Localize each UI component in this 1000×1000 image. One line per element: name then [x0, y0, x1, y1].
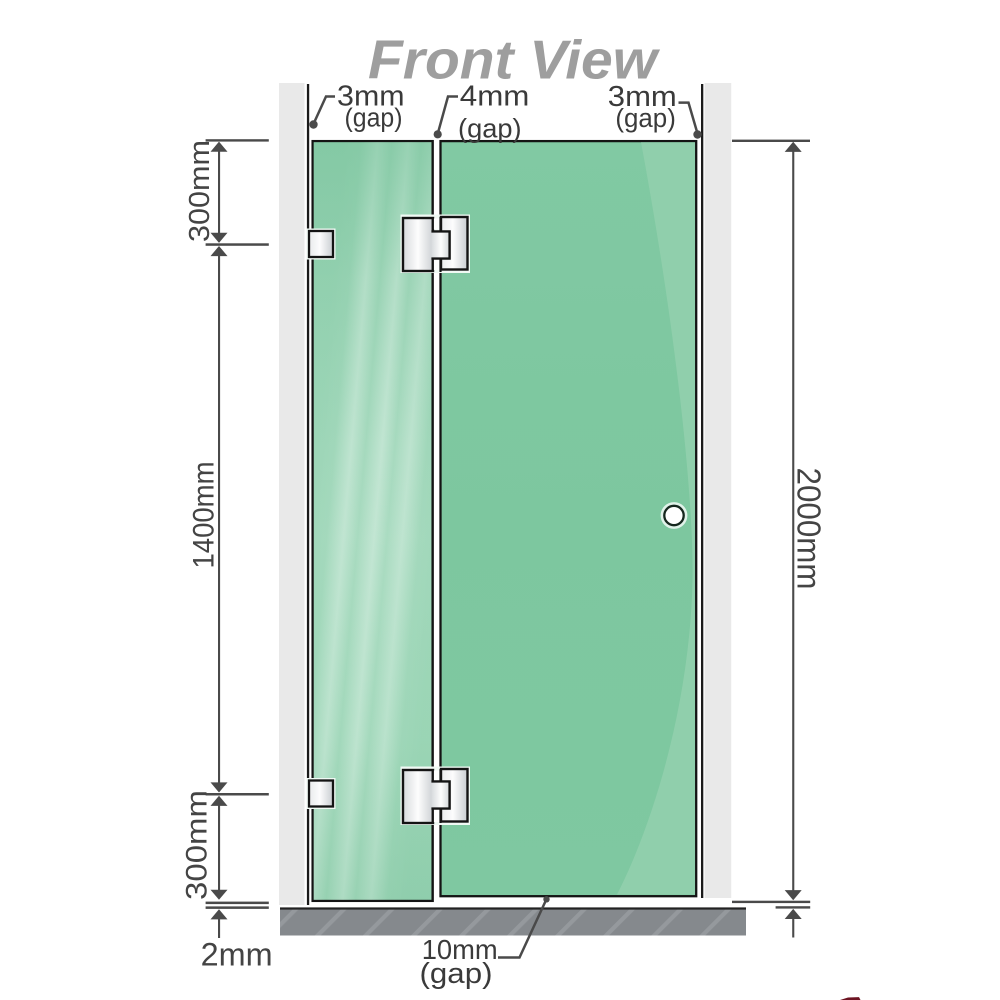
svg-text:(gap): (gap): [458, 114, 522, 144]
svg-text:300mm: 300mm: [181, 790, 214, 900]
svg-text:4mm: 4mm: [460, 81, 530, 113]
svg-text:(gap): (gap): [420, 958, 493, 990]
svg-text:300mm: 300mm: [184, 140, 216, 242]
svg-text:(gap): (gap): [615, 105, 676, 133]
svg-text:1400mm: 1400mm: [188, 462, 221, 569]
svg-text:(gap): (gap): [345, 105, 403, 133]
svg-text:2000mm: 2000mm: [791, 468, 828, 590]
svg-text:2mm: 2mm: [201, 937, 273, 973]
